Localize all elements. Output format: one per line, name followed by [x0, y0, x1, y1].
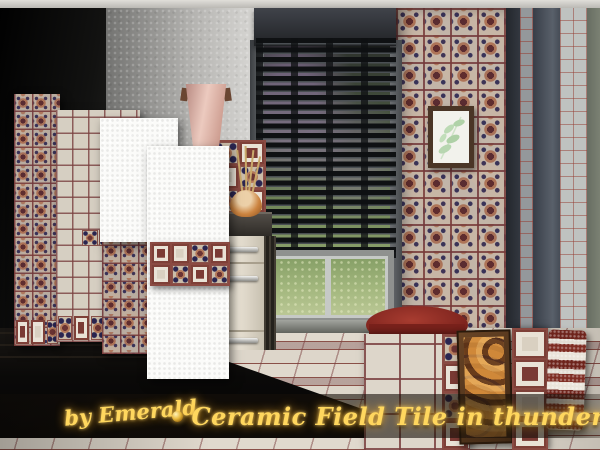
ornate-tile-sample-panel [14, 94, 60, 346]
tile-cell [31, 320, 44, 344]
venetian-blinds [256, 38, 396, 258]
leaf-art [433, 111, 469, 163]
gold-bullet-icon [172, 411, 183, 422]
vase-with-branches [230, 190, 262, 217]
caption-banner: by Emerald Ceramic Field Tile in thunder [0, 394, 600, 438]
tile-cell [152, 244, 170, 263]
border-tile-strip-sample [150, 242, 230, 286]
window-pane-right [331, 259, 385, 315]
tile-cell [58, 316, 72, 340]
tile-cell [172, 244, 190, 263]
tile-cell [16, 320, 29, 344]
tile-cell [82, 230, 98, 246]
sims-screenshot: by Emerald Ceramic Field Tile in thunder [0, 0, 600, 450]
title-row: Ceramic Field Tile in thunder [198, 394, 598, 438]
tile-cell [172, 265, 190, 284]
window-lower-sash [262, 250, 394, 324]
drawer-handle [224, 338, 258, 343]
botanical-print [428, 106, 474, 168]
tile-cell [514, 360, 546, 388]
ornate-tile-wall [396, 8, 508, 334]
window-pane-left [271, 259, 325, 315]
tile-cell [152, 265, 170, 284]
tile-cell [211, 244, 229, 263]
border-tile-row [16, 320, 58, 344]
tile-cell [191, 244, 209, 263]
tile-cell [74, 316, 90, 340]
item-title: Ceramic Field Tile in thunder [192, 402, 600, 431]
tile-cell [211, 265, 229, 284]
appliance-side [264, 236, 276, 350]
tile-cell [514, 330, 546, 358]
tile-cell [191, 265, 209, 284]
